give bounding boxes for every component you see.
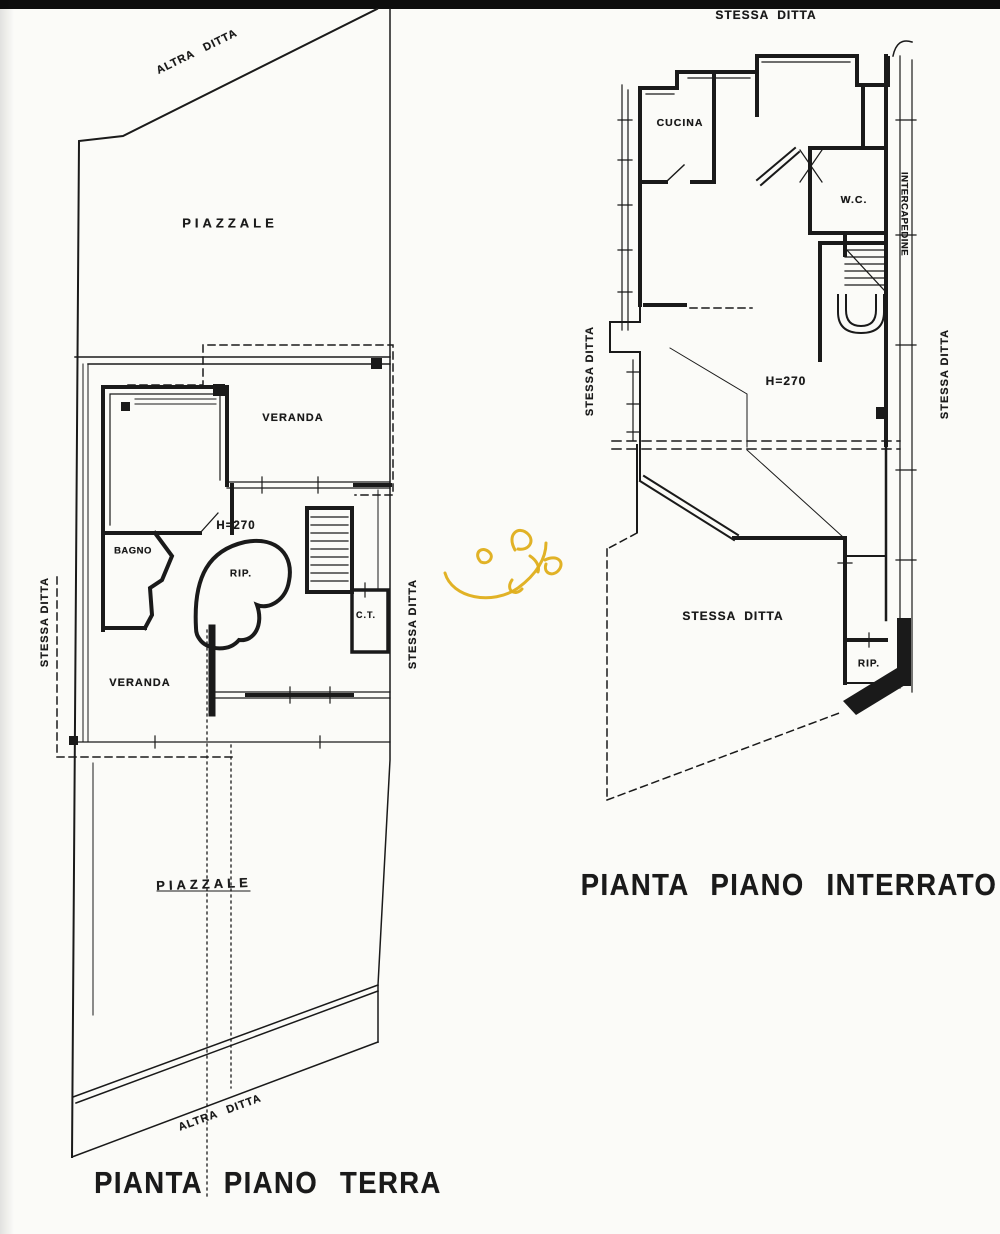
- terra-plan-drawing: [57, 9, 393, 1200]
- room-label-cucina: CUCINA: [657, 117, 704, 129]
- floor-plan-linework: [0, 0, 1000, 1234]
- plot-label-stessa-ditta-top: STESSA DITTA: [715, 8, 816, 22]
- plan-title-interrato: PIANTA PIANO INTERRATO: [581, 867, 998, 902]
- signature-mark: [445, 530, 561, 597]
- room-label-intercapedine: INTERCAPEDINE: [899, 172, 910, 256]
- room-label-veranda-top: VERANDA: [262, 412, 323, 424]
- height-note-interrato: H=270: [766, 374, 807, 388]
- side-label-stessa-ditta-terra-left: STESSA DITTA: [39, 577, 51, 667]
- room-label-rip-interrato: RIP.: [858, 659, 880, 670]
- side-label-stessa-ditta-int-right: STESSA DITTA: [939, 329, 951, 419]
- interrato-plan-drawing: [607, 41, 916, 800]
- scanned-floor-plan-document: ALTRA DITTA PIAZZALE VERANDA H=270 BAGNO…: [0, 0, 1000, 1234]
- plan-title-terra: PIANTA PIANO TERRA: [94, 1165, 442, 1200]
- scan-top-edge: [0, 0, 1000, 9]
- room-label-veranda-lower: VERANDA: [109, 677, 170, 689]
- height-note-terra: H=270: [216, 520, 255, 532]
- area-label-stessa-ditta-mid: STESSA DITTA: [682, 609, 783, 623]
- room-label-ct: C.T.: [356, 610, 376, 620]
- side-label-stessa-ditta-int-left: STESSA DITTA: [584, 326, 596, 416]
- side-label-stessa-ditta-terra-right: STESSA DITTA: [407, 579, 419, 669]
- room-label-bagno: BAGNO: [114, 546, 152, 557]
- room-label-rip-terra: RIP.: [230, 569, 252, 580]
- area-label-piazzale-top: PIAZZALE: [182, 216, 278, 231]
- room-label-wc: W.C.: [841, 194, 868, 206]
